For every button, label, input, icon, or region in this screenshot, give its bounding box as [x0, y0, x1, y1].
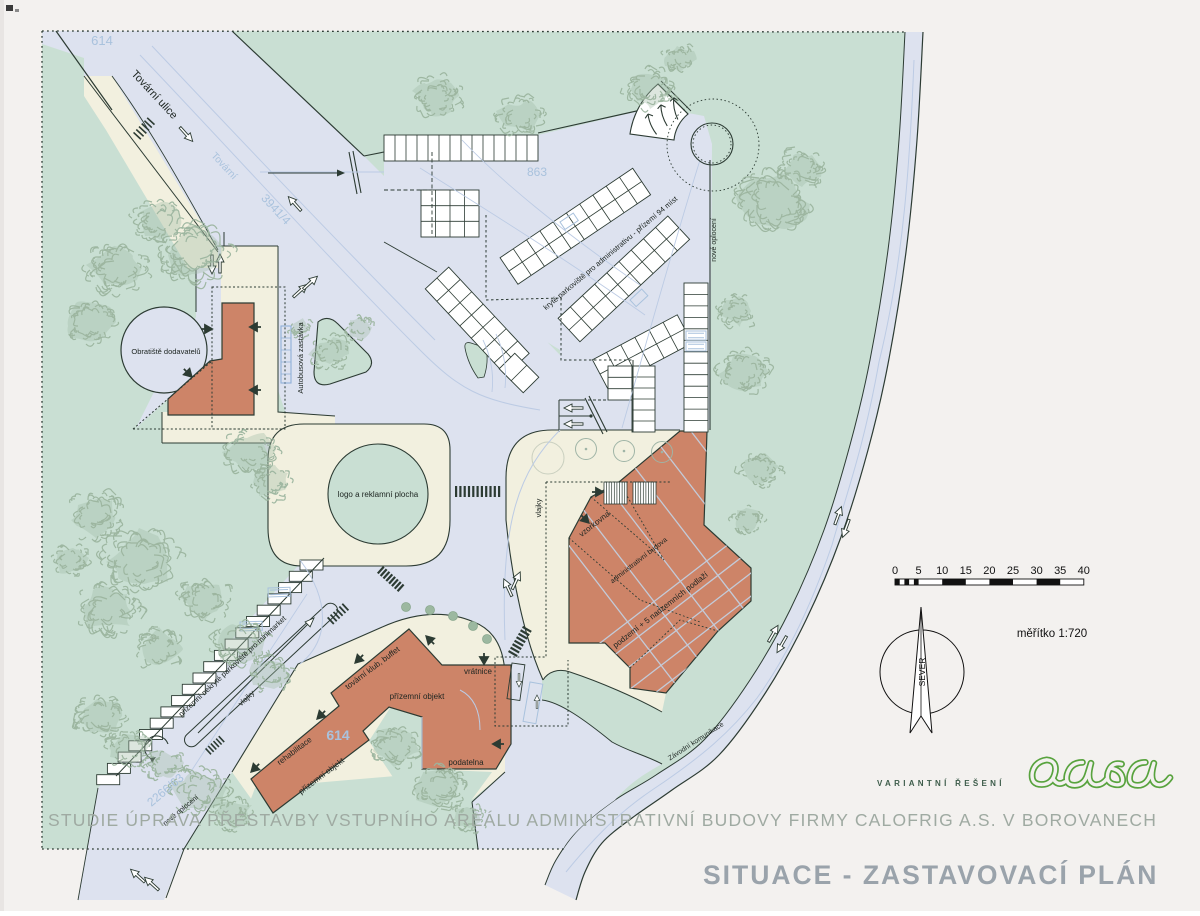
svg-text:VARIANTNÍ ŘEŠENÍ: VARIANTNÍ ŘEŠENÍ: [877, 779, 1005, 788]
svg-text:5: 5: [916, 565, 922, 577]
svg-text:Autobusová zastávka: Autobusová zastávka: [296, 322, 305, 394]
svg-text:0: 0: [892, 565, 898, 577]
svg-text:25: 25: [1007, 565, 1019, 577]
svg-text:614: 614: [91, 33, 113, 48]
svg-text:vrátnice: vrátnice: [464, 667, 493, 676]
svg-text:35: 35: [1054, 565, 1066, 577]
svg-text:nové oplocení: nové oplocení: [711, 218, 718, 262]
svg-text:SITUACE - ZASTAVOVACÍ PLÁN: SITUACE - ZASTAVOVACÍ PLÁN: [703, 860, 1158, 890]
svg-text:Obratiště dodavatelů: Obratiště dodavatelů: [131, 347, 200, 356]
svg-text:614: 614: [326, 727, 350, 743]
svg-text:vlajky: vlajky: [534, 498, 543, 517]
svg-text:SEVER: SEVER: [917, 658, 927, 687]
svg-text:40: 40: [1078, 565, 1090, 577]
svg-text:přízemní objekt: přízemní objekt: [390, 692, 445, 701]
svg-text:863: 863: [527, 165, 547, 179]
svg-text:10: 10: [936, 565, 948, 577]
svg-text:15: 15: [960, 565, 972, 577]
svg-text:30: 30: [1030, 565, 1042, 577]
svg-text:STUDIE ÚPRAVA PŘESTAVBY VSTUP: STUDIE ÚPRAVA PŘESTAVBY VSTUPNÍHO AREÁLU…: [48, 809, 1157, 830]
svg-text:podatelna: podatelna: [448, 758, 484, 767]
svg-text:20: 20: [983, 565, 995, 577]
svg-text:logo a reklamní plocha: logo a reklamní plocha: [338, 490, 419, 499]
svg-text:měřítko 1:720: měřítko 1:720: [1017, 628, 1087, 640]
